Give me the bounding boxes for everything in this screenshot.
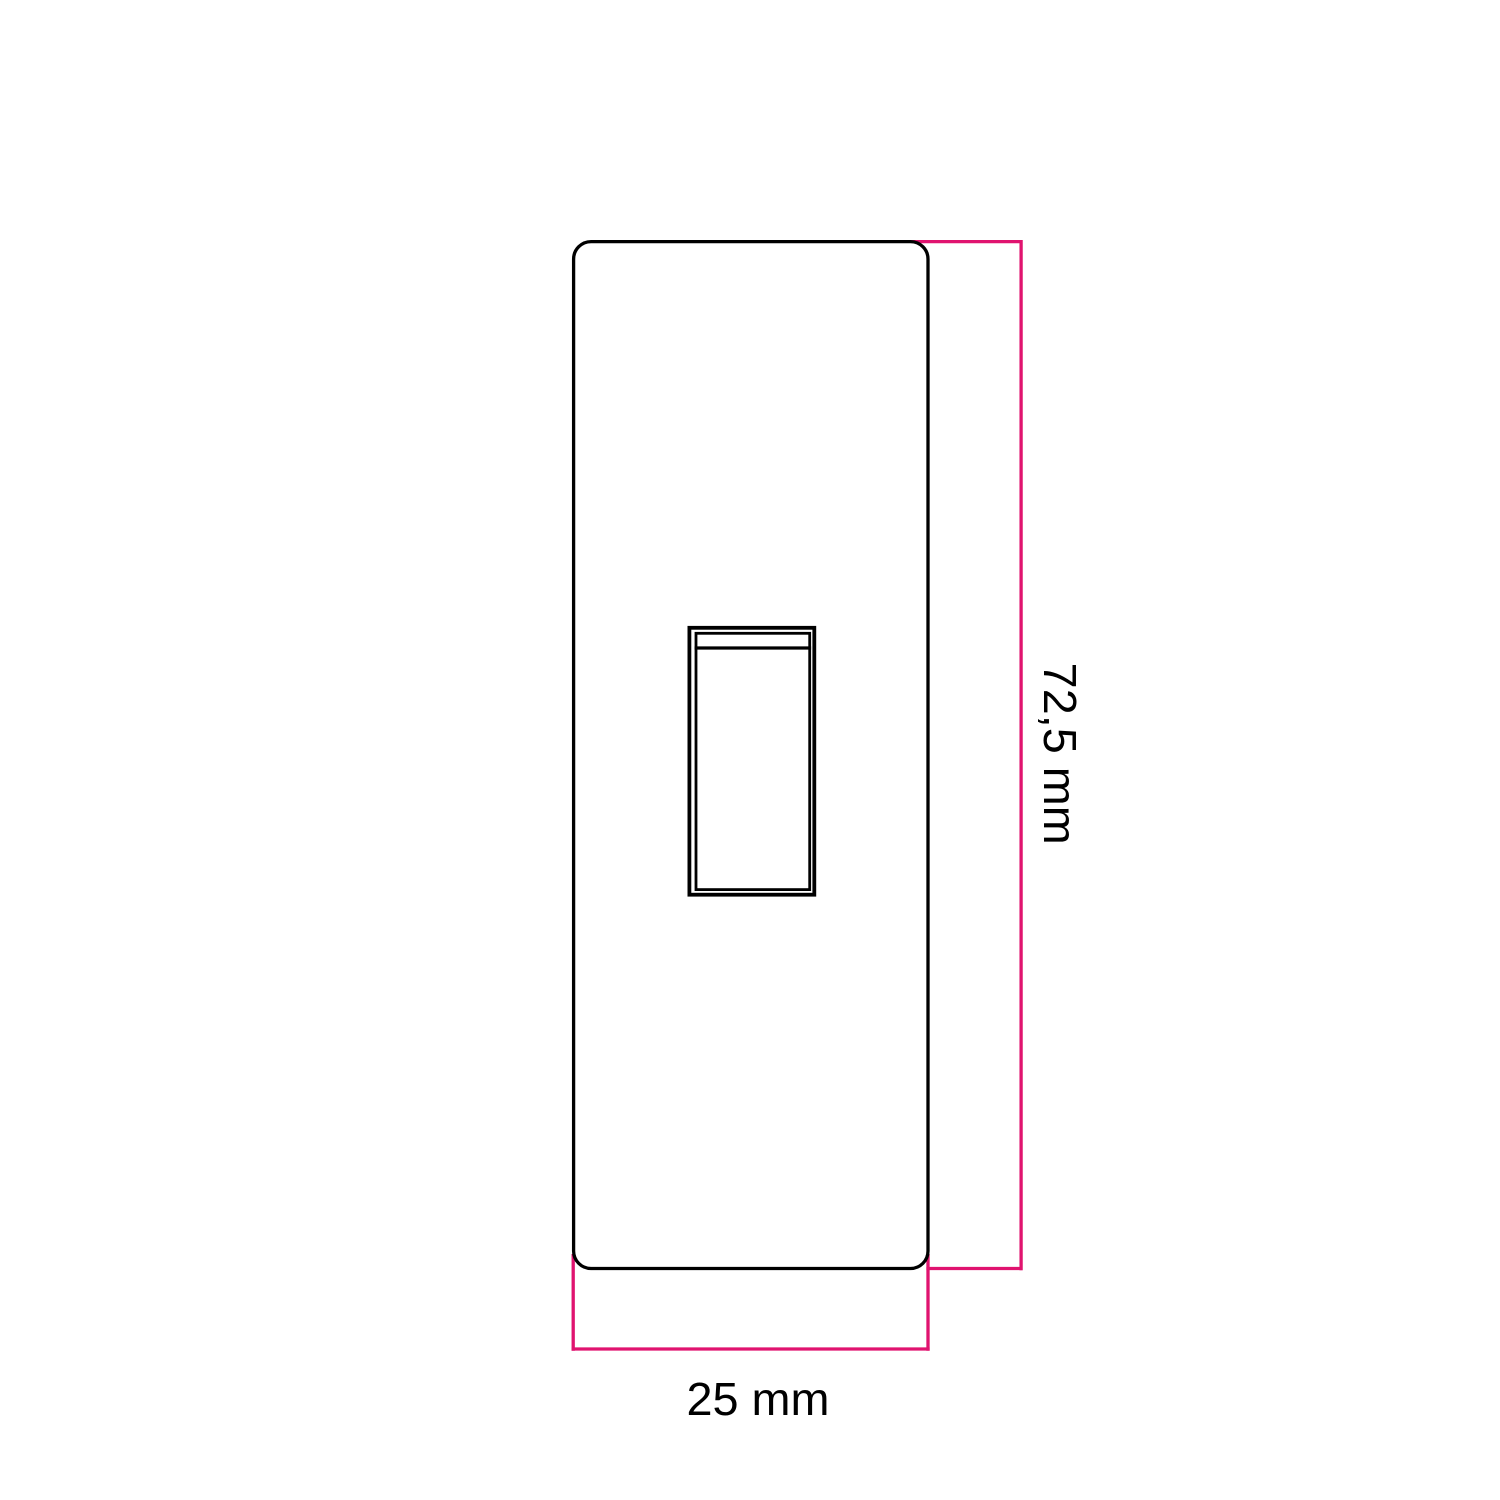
svg-text:25 mm: 25 mm [686, 1373, 829, 1425]
svg-text:72,5 mm: 72,5 mm [1034, 663, 1086, 845]
